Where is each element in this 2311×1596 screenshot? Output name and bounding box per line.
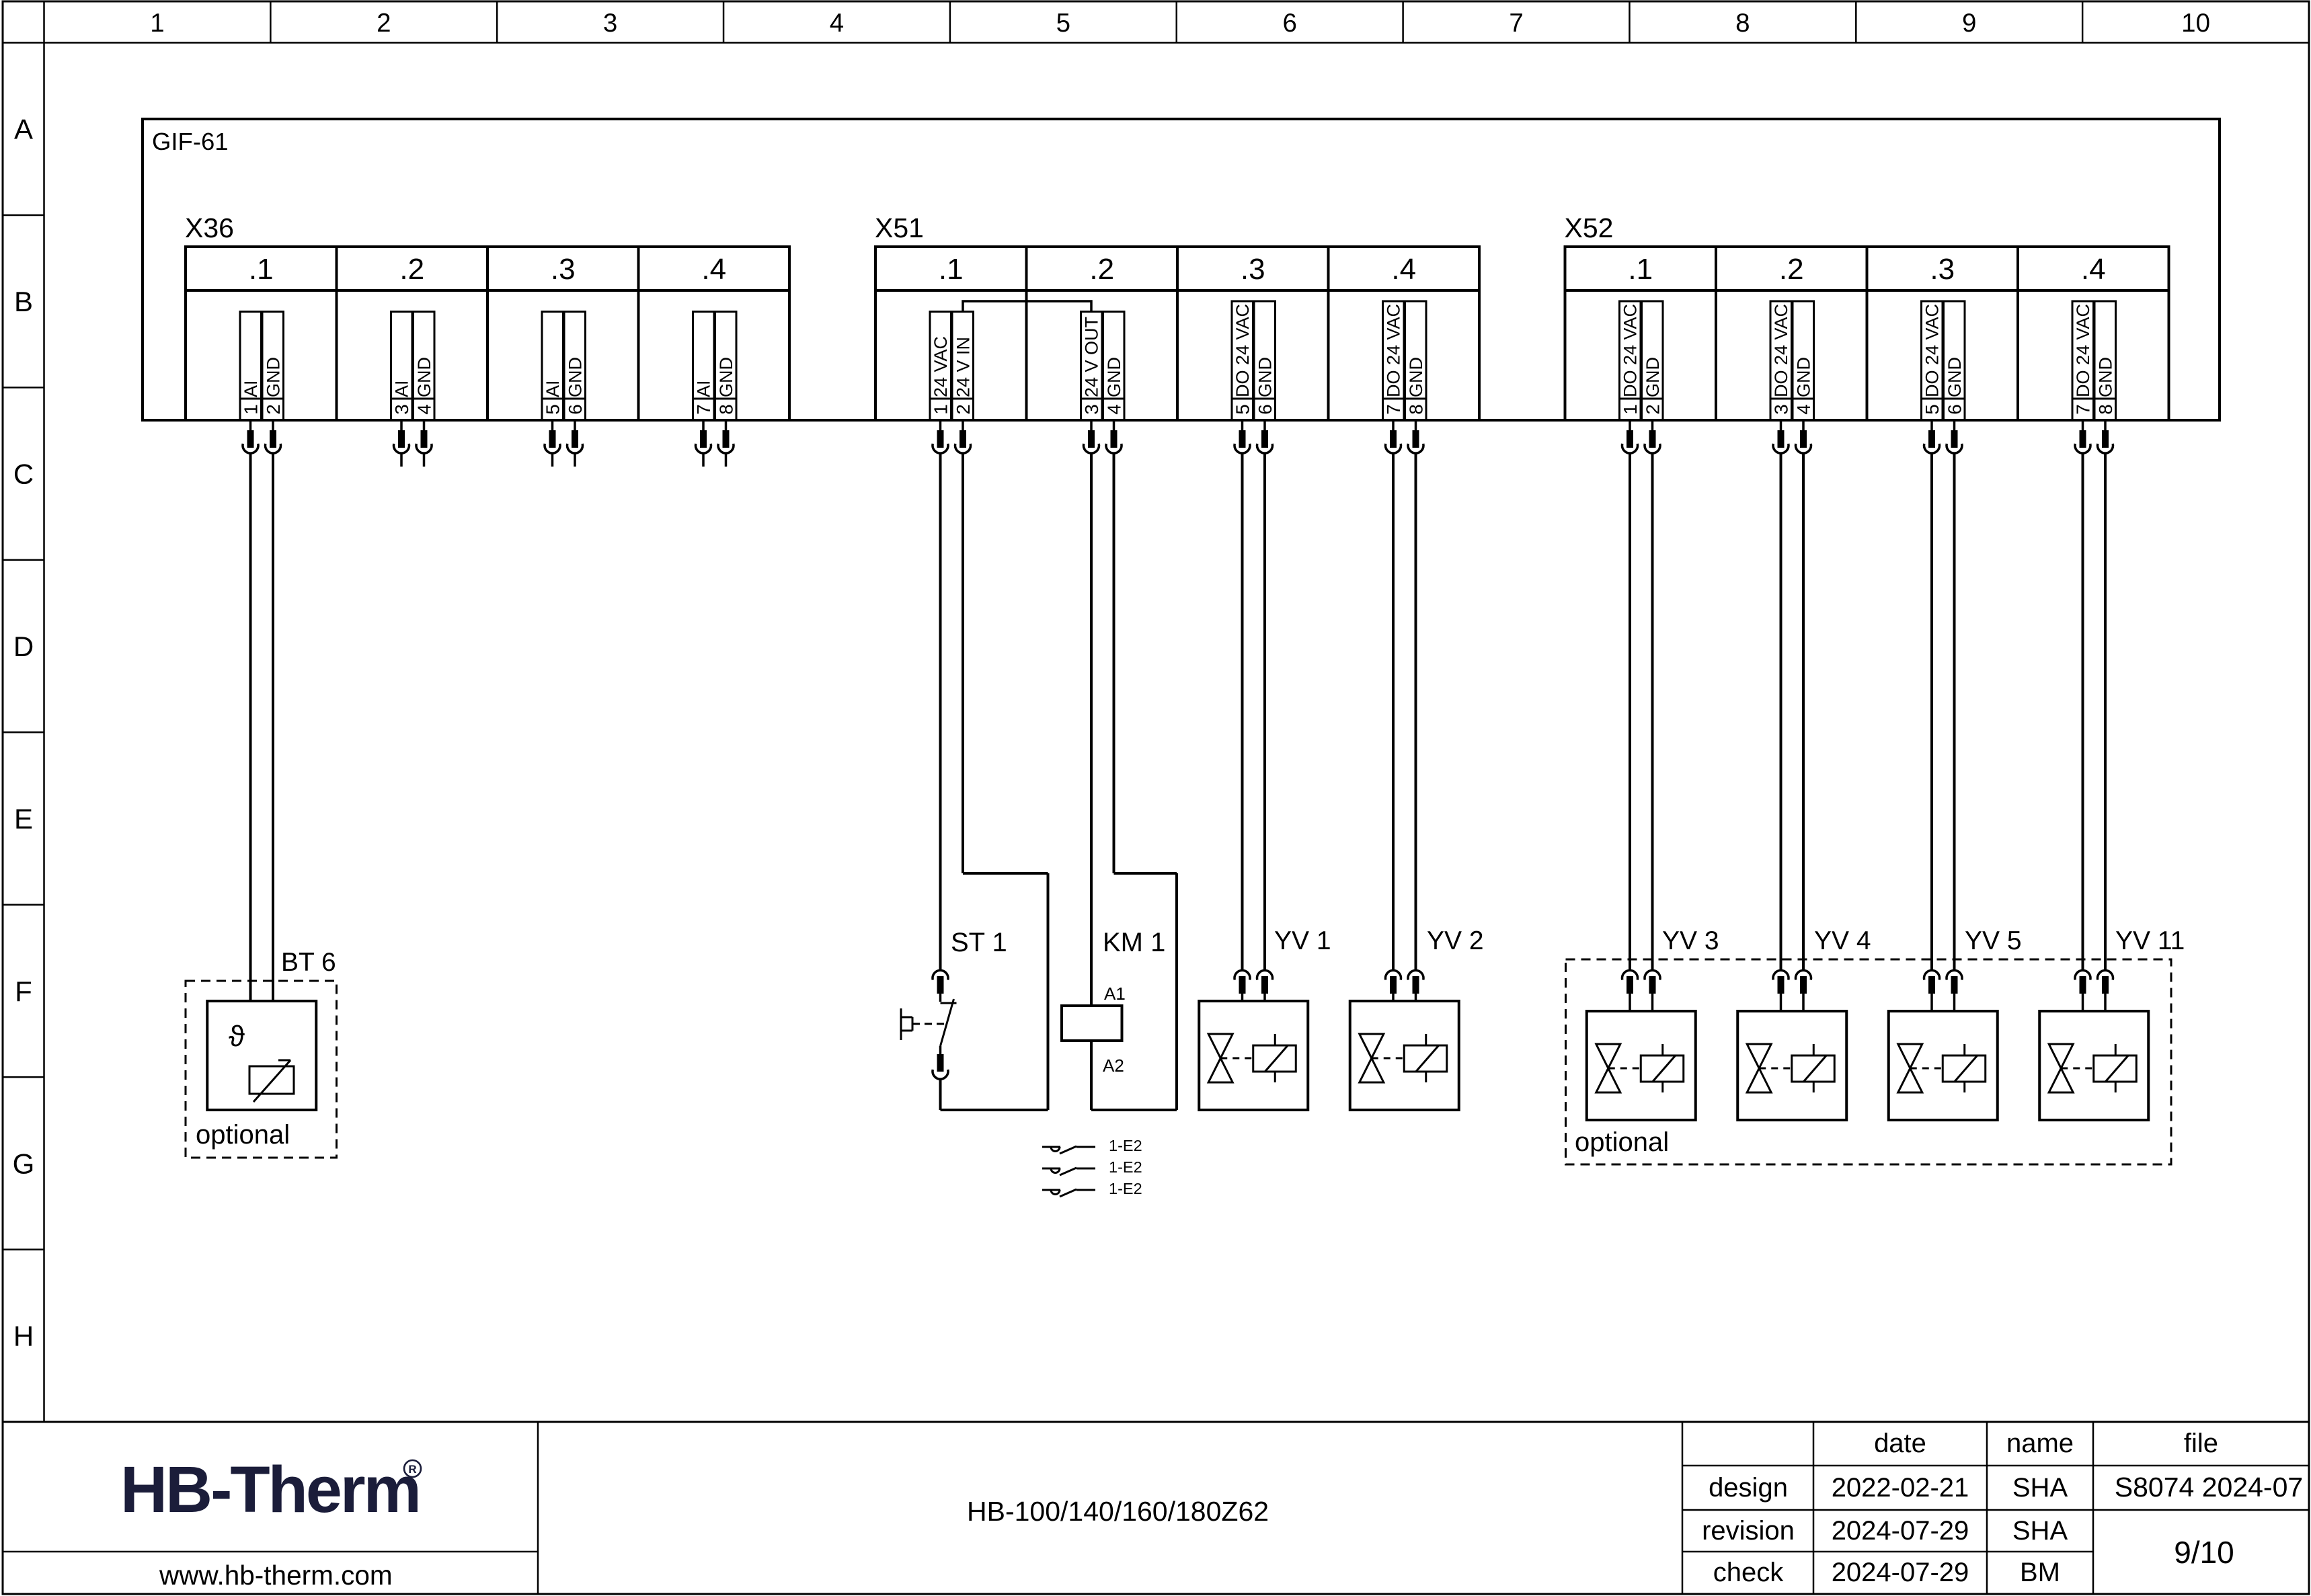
svg-text:YV 2: YV 2 [1427, 926, 1484, 955]
svg-text:A: A [14, 114, 33, 145]
svg-text:4: 4 [830, 9, 844, 38]
svg-text:1: 1 [1620, 404, 1641, 415]
svg-text:.1: .1 [249, 253, 274, 286]
svg-text:6: 6 [1945, 404, 1965, 415]
svg-text:DO 24 VAC: DO 24 VAC [1384, 304, 1404, 397]
svg-text:DO 24 VAC: DO 24 VAC [1922, 304, 1943, 397]
svg-text:D: D [13, 631, 34, 662]
svg-text:A2: A2 [1103, 1055, 1124, 1076]
svg-text:HB-Therm: HB-Therm [120, 1453, 420, 1526]
svg-text:date: date [1874, 1429, 1926, 1458]
svg-text:E: E [14, 803, 33, 834]
svg-text:2: 2 [1643, 404, 1663, 415]
svg-text:GND: GND [2096, 357, 2116, 397]
svg-text:9/10: 9/10 [2174, 1535, 2234, 1570]
svg-text:6: 6 [1282, 9, 1296, 38]
svg-text:5: 5 [1056, 9, 1070, 38]
svg-text:24 VAC: 24 VAC [931, 336, 951, 397]
svg-text:YV 11: YV 11 [2115, 926, 2185, 955]
svg-text:1-E2: 1-E2 [1109, 1137, 1142, 1154]
svg-text:2024-07-29: 2024-07-29 [1832, 1558, 1969, 1587]
svg-text:.2: .2 [1779, 253, 1804, 286]
svg-text:2: 2 [377, 9, 391, 38]
svg-text:GND: GND [264, 357, 284, 397]
svg-text:ST 1: ST 1 [951, 928, 1007, 957]
svg-text:X52: X52 [1565, 212, 1614, 243]
svg-text:7: 7 [693, 404, 714, 415]
svg-text:S8074 2024-07: S8074 2024-07 [2115, 1472, 2303, 1503]
svg-text:8: 8 [716, 404, 737, 415]
svg-text:YV 4: YV 4 [1814, 926, 1871, 955]
svg-text:GND: GND [414, 357, 434, 397]
svg-text:4: 4 [414, 404, 435, 415]
svg-text:HB-100/140/160/180Z62: HB-100/140/160/180Z62 [967, 1496, 1269, 1527]
svg-text:G: G [13, 1148, 35, 1179]
svg-text:GND: GND [1643, 357, 1663, 397]
svg-text:X51: X51 [875, 212, 924, 243]
svg-text:KM 1: KM 1 [1103, 928, 1165, 957]
svg-text:AI: AI [543, 380, 563, 397]
svg-text:3: 3 [1771, 404, 1792, 415]
svg-text:2: 2 [263, 404, 284, 415]
svg-text:24 V OUT: 24 V OUT [1082, 317, 1102, 397]
svg-text:BM: BM [2020, 1558, 2060, 1587]
svg-text:B: B [14, 286, 33, 317]
svg-text:H: H [13, 1320, 34, 1352]
svg-text:1: 1 [150, 9, 164, 38]
svg-text:10: 10 [2181, 9, 2210, 38]
svg-text:optional: optional [1575, 1127, 1669, 1157]
svg-text:DO 24 VAC: DO 24 VAC [1232, 304, 1253, 397]
svg-text:.4: .4 [2081, 253, 2106, 286]
svg-text:.4: .4 [701, 253, 726, 286]
svg-text:F: F [15, 975, 32, 1007]
svg-text:AI: AI [241, 380, 261, 397]
svg-text:DO 24 VAC: DO 24 VAC [2073, 304, 2093, 397]
svg-text:AI: AI [694, 380, 714, 397]
svg-text:2022-02-21: 2022-02-21 [1832, 1473, 1969, 1503]
svg-text:8: 8 [1735, 9, 1750, 38]
svg-text:9: 9 [1962, 9, 1976, 38]
svg-text:.1: .1 [939, 253, 964, 286]
svg-text:4: 4 [1793, 404, 1814, 415]
svg-text:optional: optional [196, 1120, 290, 1150]
svg-text:5: 5 [543, 404, 563, 415]
svg-text:7: 7 [1383, 404, 1404, 415]
svg-text:A1: A1 [1104, 984, 1126, 1004]
svg-text:X36: X36 [185, 212, 234, 243]
svg-text:8: 8 [2095, 404, 2116, 415]
svg-text:.2: .2 [1089, 253, 1114, 286]
svg-text:3: 3 [603, 9, 617, 38]
svg-text:1: 1 [931, 404, 951, 415]
svg-text:www.hb-therm.com: www.hb-therm.com [159, 1560, 393, 1591]
svg-text:6: 6 [1255, 404, 1276, 415]
svg-text:7: 7 [1509, 9, 1523, 38]
svg-text:GND: GND [1945, 357, 1965, 397]
svg-text:.3: .3 [551, 253, 576, 286]
svg-text:DO 24 VAC: DO 24 VAC [1620, 304, 1641, 397]
svg-text:GND: GND [565, 357, 586, 397]
svg-text:.2: .2 [399, 253, 424, 286]
svg-text:YV 5: YV 5 [1965, 926, 2022, 955]
svg-text:.3: .3 [1930, 253, 1955, 286]
svg-text:YV 1: YV 1 [1274, 926, 1331, 955]
svg-text:1-E2: 1-E2 [1109, 1158, 1142, 1176]
svg-text:C: C [13, 458, 34, 490]
svg-text:3: 3 [391, 404, 412, 415]
svg-text:GND: GND [1794, 357, 1814, 397]
svg-text:.3: .3 [1241, 253, 1265, 286]
svg-text:AI: AI [392, 380, 412, 397]
svg-text:BT 6: BT 6 [281, 948, 336, 977]
svg-text:5: 5 [1922, 404, 1943, 415]
svg-text:R: R [408, 1463, 416, 1476]
svg-text:YV 3: YV 3 [1662, 926, 1719, 955]
svg-text:.4: .4 [1391, 253, 1416, 286]
svg-text:3: 3 [1081, 404, 1102, 415]
svg-text:revision: revision [1702, 1516, 1795, 1546]
svg-text:check: check [1713, 1558, 1784, 1587]
svg-text:GND: GND [1255, 357, 1276, 397]
svg-text:design: design [1709, 1473, 1788, 1503]
svg-text:4: 4 [1104, 404, 1125, 415]
svg-text:DO 24 VAC: DO 24 VAC [1771, 304, 1791, 397]
svg-text:6: 6 [565, 404, 586, 415]
svg-text:.1: .1 [1628, 253, 1653, 286]
svg-text:7: 7 [2073, 404, 2094, 415]
svg-text:SHA: SHA [2012, 1516, 2068, 1546]
svg-text:name: name [2006, 1429, 2074, 1458]
svg-text:8: 8 [1406, 404, 1427, 415]
svg-text:GND: GND [1104, 357, 1124, 397]
svg-text:24 V IN: 24 V IN [953, 337, 974, 397]
svg-text:GND: GND [716, 357, 736, 397]
svg-text:file: file [2184, 1429, 2218, 1458]
svg-text:1-E2: 1-E2 [1109, 1180, 1142, 1197]
svg-text:ϑ: ϑ [229, 1020, 245, 1053]
svg-text:5: 5 [1232, 404, 1253, 415]
svg-text:2024-07-29: 2024-07-29 [1832, 1516, 1969, 1546]
svg-text:1: 1 [241, 404, 262, 415]
svg-text:GIF-61: GIF-61 [152, 128, 229, 155]
svg-text:2: 2 [953, 404, 974, 415]
svg-text:GND: GND [1406, 357, 1426, 397]
svg-text:SHA: SHA [2012, 1473, 2068, 1503]
